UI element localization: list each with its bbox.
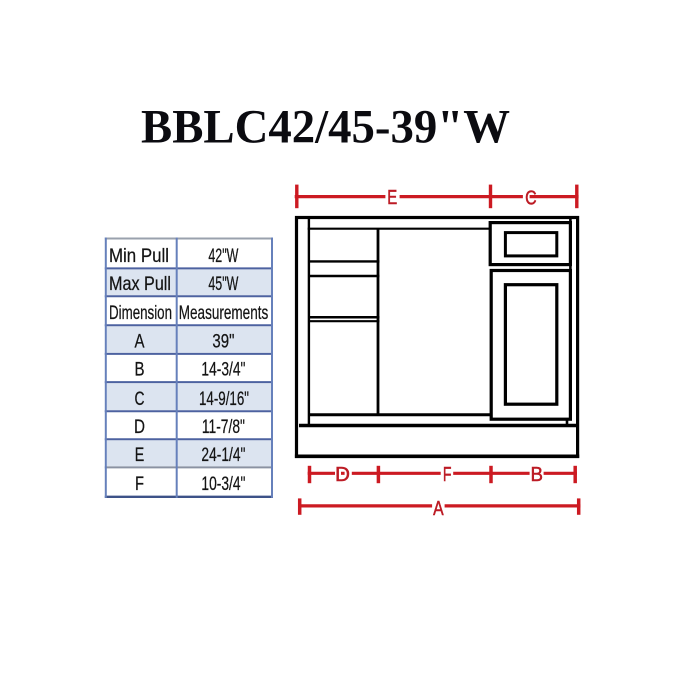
svg-text:39": 39" — [212, 331, 234, 353]
svg-text:C: C — [525, 188, 537, 210]
svg-text:10-3/4": 10-3/4" — [201, 473, 245, 495]
svg-text:42"W: 42"W — [208, 245, 238, 267]
svg-text:Min Pull: Min Pull — [109, 245, 169, 267]
svg-text:E: E — [135, 444, 145, 466]
svg-text:A: A — [135, 331, 145, 353]
svg-text:Dimension: Dimension — [109, 302, 172, 324]
svg-text:F: F — [135, 473, 144, 495]
svg-text:Measurements: Measurements — [179, 302, 269, 324]
svg-text:F: F — [443, 464, 452, 486]
svg-text:B: B — [531, 464, 544, 486]
svg-text:B: B — [135, 359, 145, 381]
svg-text:24-1/4": 24-1/4" — [201, 444, 245, 466]
svg-text:D: D — [335, 464, 350, 486]
svg-text:11-7/8": 11-7/8" — [202, 416, 245, 438]
svg-text:45"W: 45"W — [208, 273, 238, 295]
svg-text:Max Pull: Max Pull — [109, 273, 171, 295]
svg-text:C: C — [135, 388, 145, 410]
svg-text:D: D — [134, 416, 145, 438]
svg-text:A: A — [433, 498, 444, 520]
svg-text:E: E — [387, 187, 397, 209]
svg-text:14-3/4": 14-3/4" — [201, 359, 245, 381]
svg-text:BBLC42/45-39"W: BBLC42/45-39"W — [141, 101, 510, 154]
svg-text:14-9/16": 14-9/16" — [199, 388, 249, 410]
